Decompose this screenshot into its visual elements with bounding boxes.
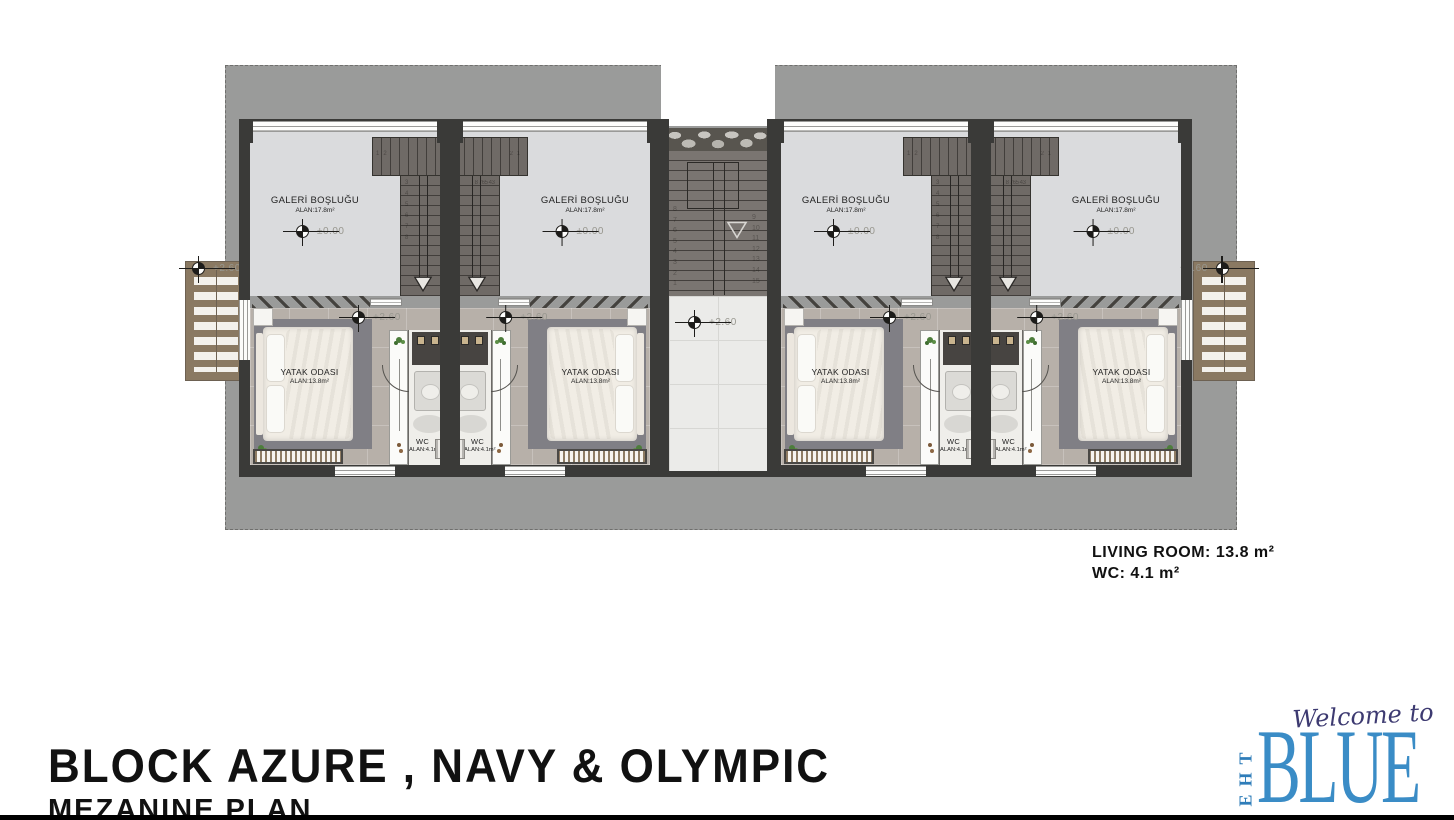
gallery-level-marker: ±0.00 (296, 225, 344, 238)
pillow (1146, 385, 1165, 433)
plan-title: BLOCK AZURE , NAVY & OLYMPIC (48, 740, 830, 794)
room-name: YATAK ODASI (262, 367, 357, 377)
plant-icon (396, 337, 402, 343)
vanity-item (461, 336, 469, 345)
corridor-level-marker: +2.60 (688, 316, 737, 329)
room-area: ALAN:17.8m² (528, 207, 642, 214)
the-blue-logo: Welcome to THE BLUE (1225, 698, 1450, 818)
wall-column (437, 119, 463, 143)
wc-room-label: WC ALAN:4.1m² (940, 437, 967, 453)
room-name: YATAK ODASI (1074, 367, 1169, 377)
plant-icon (498, 337, 504, 343)
bottom-wall (239, 465, 661, 477)
gallery-room-label: GALERİ BOŞLUĞU ALAN:17.8m² (528, 195, 642, 214)
level-marker-icon (827, 225, 840, 238)
gallery-room-label: GALERİ BOŞLUĞU ALAN:17.8m² (1059, 195, 1173, 214)
glass-balustrade (370, 298, 402, 306)
bottom-window (505, 466, 565, 476)
gallery-railing (1061, 296, 1179, 308)
gallery-railing (783, 296, 901, 308)
stair-step-numbers: 12 (907, 151, 922, 157)
floor-plan-canvas: 87654321 9101112131415 +2.60 +2.60 +2.60… (0, 0, 1454, 820)
stair-step-numbers: 345678 (936, 178, 939, 244)
bedroom-level-marker: +2.60 (883, 311, 932, 324)
stair-direction-arrow (944, 276, 964, 293)
apartment-unit: 12 345678 GALERİ BOŞLUĞU ALAN:17.8m² ±0.… (986, 119, 1181, 477)
stair-direction-arrow (467, 276, 487, 293)
plant-icon (927, 337, 933, 343)
nightstand (627, 308, 647, 326)
room-name: WC (464, 437, 491, 446)
wc-sink (987, 371, 1017, 411)
level-marker-icon (192, 262, 205, 275)
decor-items (928, 443, 932, 447)
stair-step-numbers: 345678 (475, 178, 495, 189)
vanity-item (475, 336, 483, 345)
wardrobe (784, 449, 874, 464)
bottom-window (1036, 466, 1096, 476)
gallery-room-label: GALERİ BOŞLUĞU ALAN:17.8m² (258, 195, 372, 214)
core-bottom-wall (669, 471, 767, 477)
vanity-item (431, 336, 439, 345)
living-room-area-text: LIVING ROOM: 13.8 m² (1092, 542, 1274, 563)
unit-slot: 12 345678 GALERİ BOŞLUĞU ALAN:17.8m² ±0.… (455, 119, 650, 477)
closet (1023, 330, 1042, 465)
exterior-wall (1181, 119, 1192, 477)
gallery-railing (530, 296, 648, 308)
unit-stair-upper-flight: 12 (985, 137, 1059, 176)
stair-handrail (1003, 176, 1012, 280)
gallery-room-label: GALERİ BOŞLUĞU ALAN:17.8m² (789, 195, 903, 214)
room-area: ALAN:4.1m² (464, 447, 491, 453)
wc-area-text: WC: 4.1 m² (1092, 563, 1274, 584)
stair-step-numbers: 12 (1040, 151, 1055, 157)
unit-slot: 12 345678 GALERİ BOŞLUĞU ALAN:17.8m² ±0.… (781, 119, 976, 477)
wall-column (770, 119, 784, 143)
side-window (239, 300, 250, 360)
logo-blue-text: BLUE (1257, 722, 1419, 812)
unit-stair-upper-flight: 12 (372, 137, 446, 176)
stair-step-numbers: 345678 (405, 178, 408, 244)
area-info-text: LIVING ROOM: 13.8 m² WC: 4.1 m² (1092, 542, 1274, 584)
bottom-window (866, 466, 926, 476)
level-marker-icon (1216, 262, 1229, 275)
room-name: YATAK ODASI (793, 367, 888, 377)
vanity-item (1006, 336, 1014, 345)
stair-step-numbers: 9101112131415 (752, 213, 760, 287)
nightstand (1158, 308, 1178, 326)
room-area: ALAN:13.8m² (262, 378, 357, 385)
unit-slot: 12 345678 GALERİ BOŞLUĞU ALAN:17.8m² ±0.… (250, 119, 445, 477)
room-name: WC (409, 437, 436, 446)
room-area: ALAN:13.8m² (1074, 378, 1169, 385)
wall-column (647, 119, 661, 143)
stone-wall (669, 128, 767, 151)
unit-stair-upper-flight: 12 (903, 137, 977, 176)
unit-stair-run: 345678 (985, 176, 1031, 296)
nightstand (784, 308, 804, 326)
wardrobe (253, 449, 343, 464)
pillow (615, 385, 634, 433)
glass-balustrade (901, 298, 933, 306)
gallery-level-marker: ±0.00 (827, 225, 875, 238)
room-area: ALAN:4.1m² (995, 447, 1022, 453)
title-block: BLOCK AZURE , NAVY & OLYMPIC MEZANINE PL… (48, 740, 830, 820)
room-name: WC (940, 437, 967, 446)
vanity-item (417, 336, 425, 345)
bottom-black-bar (0, 815, 1454, 820)
stair-step-numbers: 12 (509, 151, 524, 157)
bottom-window (335, 466, 395, 476)
room-name: GALERİ BOŞLUĞU (1059, 195, 1173, 206)
bed-headboard (637, 333, 644, 435)
apartment-unit: 12 345678 GALERİ BOŞLUĞU ALAN:17.8m² ±0.… (455, 119, 650, 477)
block-right: 12 345678 GALERİ BOŞLUĞU ALAN:17.8m² ±0.… (770, 119, 1192, 477)
room-area: ALAN:4.1m² (409, 447, 436, 453)
glass-balustrade (1029, 298, 1061, 306)
bedroom-level-marker: +2.60 (1030, 311, 1079, 324)
room-name: WC (995, 437, 1022, 446)
wardrobe (1088, 449, 1178, 464)
plant-icon (1029, 337, 1035, 343)
decor-items (397, 443, 401, 447)
wc-room-label: WC ALAN:4.1m² (464, 437, 491, 453)
logo-the-text: THE (1233, 748, 1259, 811)
side-window (1181, 300, 1192, 360)
unit-stair-upper-flight: 12 (454, 137, 528, 176)
wc-room-label: WC ALAN:4.1m² (409, 437, 436, 453)
room-name: GALERİ BOŞLUĞU (789, 195, 903, 206)
stair-direction-arrow (726, 221, 748, 240)
stair-handrail (713, 162, 725, 295)
room-name: YATAK ODASI (543, 367, 638, 377)
party-wall (971, 119, 991, 477)
room-area: ALAN:17.8m² (789, 207, 903, 214)
bedroom-room-label: YATAK ODASI ALAN:13.8m² (262, 367, 357, 385)
room-name: GALERİ BOŞLUĞU (528, 195, 642, 206)
party-wall (440, 119, 460, 477)
apartment-unit: 12 345678 GALERİ BOŞLUĞU ALAN:17.8m² ±0.… (250, 119, 445, 477)
closet (492, 330, 511, 465)
gallery-railing (252, 296, 370, 308)
pillow (266, 385, 285, 433)
wc-room-label: WC ALAN:4.1m² (995, 437, 1022, 453)
core-top-notch (661, 63, 775, 126)
stair-handrail (950, 176, 959, 280)
decor-items (499, 443, 503, 447)
unit-stair-run: 345678 (454, 176, 500, 296)
exterior-wall (770, 119, 781, 477)
bedroom-level-marker: +2.60 (352, 311, 401, 324)
level-marker-icon (556, 225, 569, 238)
pillow (797, 385, 816, 433)
level-marker-icon (499, 311, 512, 324)
stair-step-numbers: 345678 (1006, 178, 1026, 189)
bedroom-room-label: YATAK ODASI ALAN:13.8m² (793, 367, 888, 385)
unit-slot: 12 345678 GALERİ BOŞLUĞU ALAN:17.8m² ±0.… (986, 119, 1181, 477)
wc-sink (456, 371, 486, 411)
apartment-unit: 12 345678 GALERİ BOŞLUĞU ALAN:17.8m² ±0.… (781, 119, 976, 477)
external-stair-level-marker: +2.60 (192, 262, 241, 275)
level-marker-icon (1087, 225, 1100, 238)
stair-step-numbers: 12 (376, 151, 391, 157)
closet (920, 330, 939, 465)
stair-handrail (419, 176, 428, 280)
bedroom-level-marker: +2.60 (499, 311, 548, 324)
room-area: ALAN:17.8m² (1059, 207, 1173, 214)
decor-items (1030, 443, 1034, 447)
level-marker-icon (1030, 311, 1043, 324)
room-area: ALAN:17.8m² (258, 207, 372, 214)
stair-step-numbers: 87654321 (673, 205, 677, 290)
glass-balustrade (498, 298, 530, 306)
bottom-wall (770, 465, 1192, 477)
bedroom-room-label: YATAK ODASI ALAN:13.8m² (1074, 367, 1169, 385)
external-wood-stair (1194, 262, 1254, 380)
level-marker-icon (883, 311, 896, 324)
wardrobe (557, 449, 647, 464)
bedroom-room-label: YATAK ODASI ALAN:13.8m² (543, 367, 638, 385)
exterior-wall (239, 119, 250, 477)
vanity-item (948, 336, 956, 345)
closet (389, 330, 408, 465)
wall-column (1178, 119, 1192, 143)
stair-direction-arrow (998, 276, 1018, 293)
room-area: ALAN:13.8m² (543, 378, 638, 385)
level-marker-icon (688, 316, 701, 329)
wall-column (239, 119, 253, 143)
gallery-level-marker: ±0.00 (1087, 225, 1135, 238)
vanity-item (992, 336, 1000, 345)
stair-handrail (472, 176, 481, 280)
stair-direction-arrow (413, 276, 433, 293)
exterior-wall (650, 119, 661, 477)
level-marker-icon (352, 311, 365, 324)
external-wood-stair (186, 262, 246, 380)
bed-headboard (1168, 333, 1175, 435)
room-name: GALERİ BOŞLUĞU (258, 195, 372, 206)
gallery-level-marker: ±0.00 (556, 225, 604, 238)
room-area: ALAN:4.1m² (940, 447, 967, 453)
block-left: 12 345678 GALERİ BOŞLUĞU ALAN:17.8m² ±0.… (239, 119, 661, 477)
room-area: ALAN:13.8m² (793, 378, 888, 385)
nightstand (253, 308, 273, 326)
wall-column (968, 119, 994, 143)
level-marker-icon (296, 225, 309, 238)
vanity-item (962, 336, 970, 345)
